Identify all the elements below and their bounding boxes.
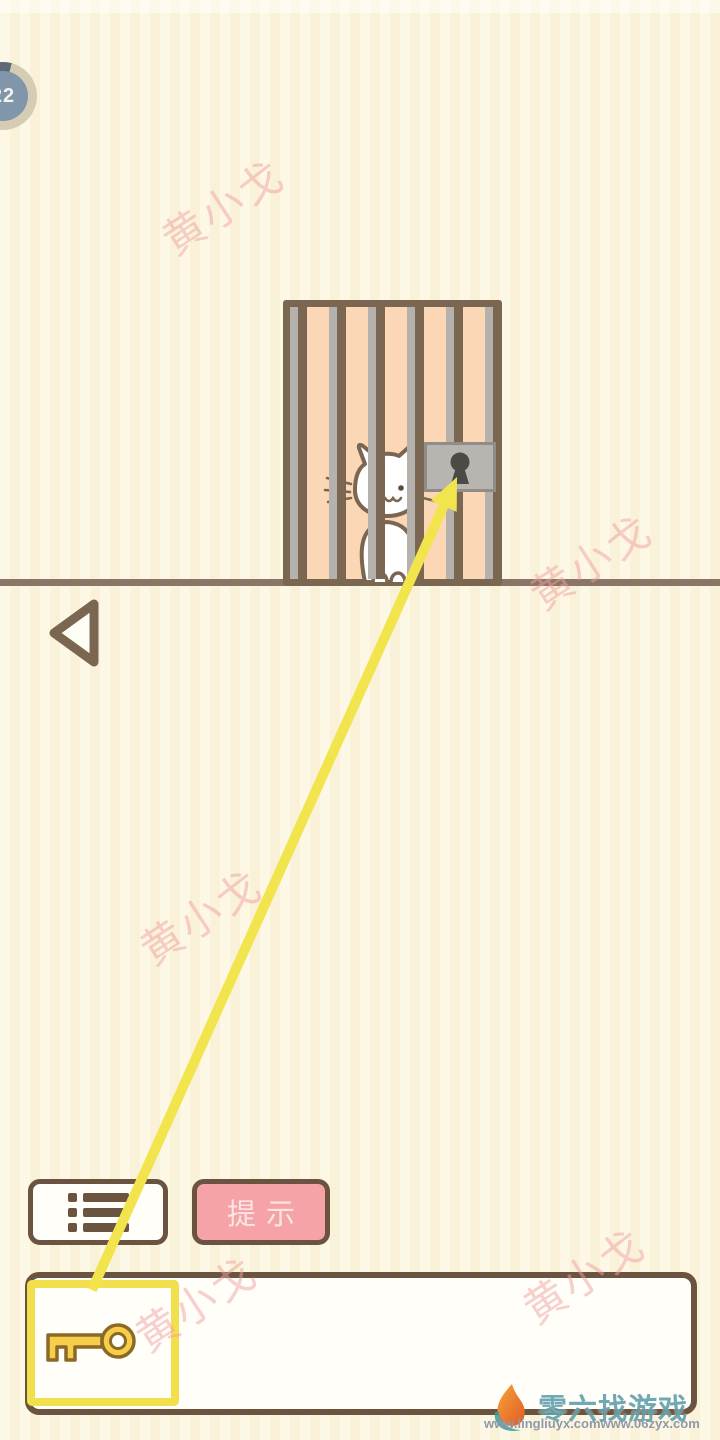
key-icon <box>35 1288 171 1398</box>
inventory-bar <box>25 1272 697 1415</box>
watermark: 黄小戈 <box>127 853 273 978</box>
cage <box>283 300 502 586</box>
padlock-icon[interactable] <box>424 442 496 492</box>
footer-url-right: www.06zyx.com <box>601 1416 700 1431</box>
hint-button-label: 提示 <box>217 1191 305 1233</box>
inventory-slot-key[interactable] <box>27 1280 179 1406</box>
game-screen: 22 <box>0 0 720 1440</box>
item-list-button[interactable] <box>28 1179 168 1245</box>
back-triangle-icon <box>54 604 94 662</box>
level-badge: 22 <box>0 62 37 130</box>
level-number: 22 <box>0 71 28 121</box>
watermark: 黄小戈 <box>149 143 295 268</box>
top-highlight-strip <box>0 0 720 13</box>
keyhole-icon <box>427 445 493 489</box>
footer-url-left: www.lingliuyx.com <box>484 1416 601 1431</box>
watermark: 黄小戈 <box>517 498 663 623</box>
hint-button[interactable]: 提示 <box>192 1179 330 1245</box>
back-button[interactable] <box>40 594 104 672</box>
list-icon <box>68 1193 129 1232</box>
